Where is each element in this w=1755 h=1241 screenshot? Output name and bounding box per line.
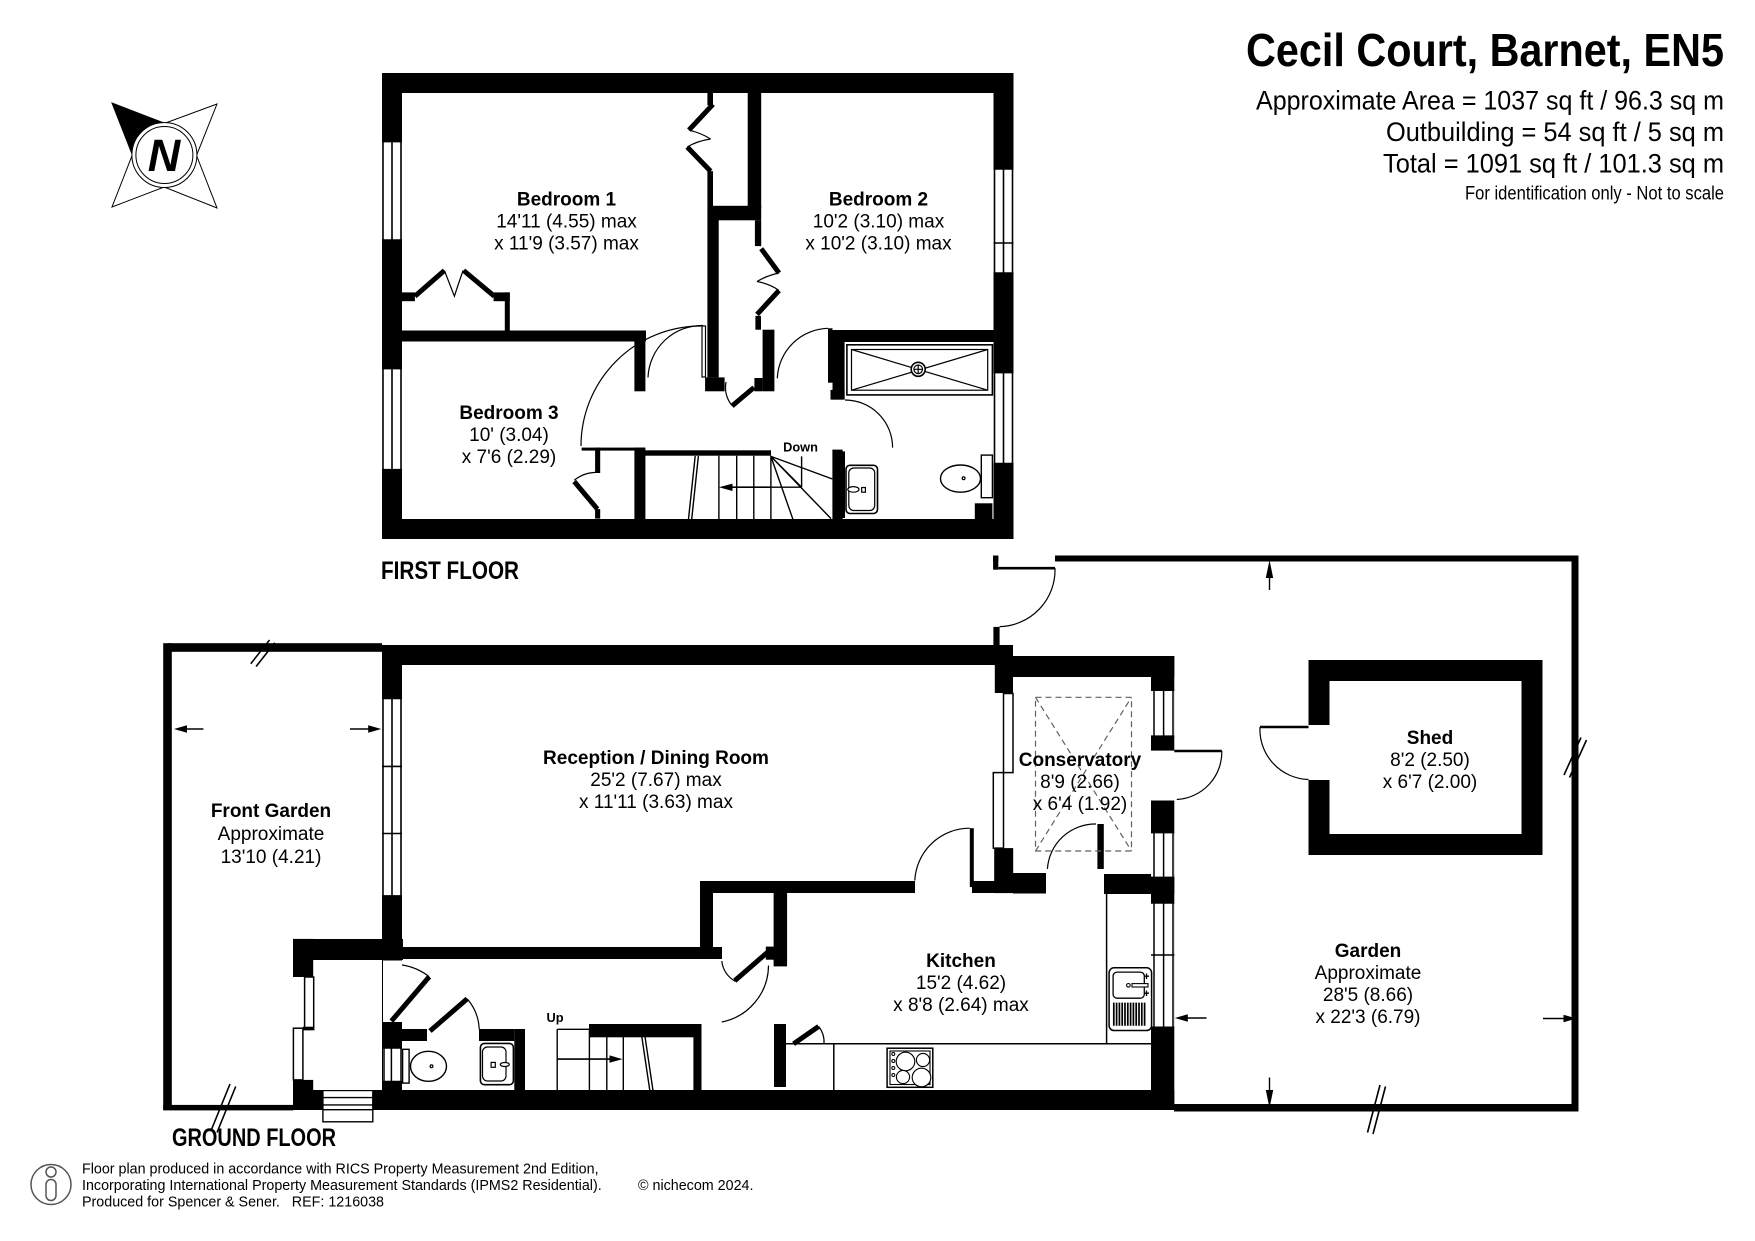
svg-text:Down: Down (783, 440, 818, 455)
svg-text:Up: Up (546, 1010, 563, 1025)
svg-text:Reception / Dining Room: Reception / Dining Room (543, 748, 769, 769)
svg-text:Approximate Area = 1037 sq ft: Approximate Area = 1037 sq ft / 96.3 sq … (1256, 86, 1724, 116)
svg-text:8'9 (2.66): 8'9 (2.66) (1040, 772, 1120, 793)
svg-text:Total = 1091 sq ft / 101.3 sq: Total = 1091 sq ft / 101.3 sq m (1383, 149, 1724, 179)
svg-text:Bedroom 2: Bedroom 2 (829, 189, 928, 210)
svg-text:x 11'11 (3.63) max: x 11'11 (3.63) max (579, 792, 733, 813)
svg-text:x 6'7 (2.00): x 6'7 (2.00) (1383, 772, 1477, 793)
svg-text:N: N (148, 130, 182, 181)
svg-text:GROUND FLOOR: GROUND FLOOR (172, 1124, 336, 1152)
svg-text:Produced for Spencer & Sener.: Produced for Spencer & Sener. REF: 12160… (82, 1195, 384, 1211)
svg-text:Cecil Court, Barnet, EN5: Cecil Court, Barnet, EN5 (1246, 24, 1724, 76)
svg-text:10'2 (3.10) max: 10'2 (3.10) max (813, 211, 945, 232)
svg-text:x 6'4 (1.92): x 6'4 (1.92) (1033, 794, 1127, 815)
svg-text:28'5 (8.66): 28'5 (8.66) (1323, 985, 1413, 1006)
svg-text:Garden: Garden (1335, 941, 1402, 962)
svg-text:x 8'8 (2.64) max: x 8'8 (2.64) max (893, 995, 1029, 1016)
svg-text:Shed: Shed (1407, 728, 1453, 749)
svg-text:Front Garden: Front Garden (211, 801, 331, 822)
svg-text:Approximate: Approximate (1315, 963, 1422, 984)
svg-text:Incorporating International Pr: Incorporating International Property Mea… (82, 1178, 602, 1194)
svg-text:8'2 (2.50): 8'2 (2.50) (1390, 750, 1470, 771)
svg-text:For identification only - Not: For identification only - Not to scale (1465, 184, 1724, 205)
svg-text:10' (3.04): 10' (3.04) (469, 425, 549, 446)
svg-text:13'10 (4.21): 13'10 (4.21) (221, 847, 322, 868)
svg-text:Conservatory: Conservatory (1019, 750, 1142, 771)
svg-text:Bedroom 1: Bedroom 1 (517, 189, 617, 210)
svg-text:Kitchen: Kitchen (926, 951, 996, 972)
svg-text:x 11'9 (3.57) max: x 11'9 (3.57) max (494, 233, 639, 254)
svg-text:15'2 (4.62): 15'2 (4.62) (916, 973, 1006, 994)
svg-text:FIRST FLOOR: FIRST FLOOR (381, 557, 519, 585)
svg-text:14'11 (4.55) max: 14'11 (4.55) max (496, 211, 637, 232)
svg-text:Bedroom 3: Bedroom 3 (459, 403, 558, 424)
svg-text:© nichecom 2024.: © nichecom 2024. (638, 1178, 753, 1194)
svg-text:25'2 (7.67) max: 25'2 (7.67) max (590, 770, 722, 791)
svg-text:Outbuilding = 54 sq ft / 5 sq: Outbuilding = 54 sq ft / 5 sq m (1386, 117, 1724, 147)
svg-text:Floor plan produced in accorda: Floor plan produced in accordance with R… (82, 1162, 599, 1178)
svg-text:x 7'6 (2.29): x 7'6 (2.29) (462, 447, 556, 468)
svg-text:Approximate: Approximate (218, 824, 325, 845)
svg-text:x 10'2 (3.10) max: x 10'2 (3.10) max (805, 233, 952, 254)
svg-text:x 22'3 (6.79): x 22'3 (6.79) (1315, 1007, 1420, 1028)
